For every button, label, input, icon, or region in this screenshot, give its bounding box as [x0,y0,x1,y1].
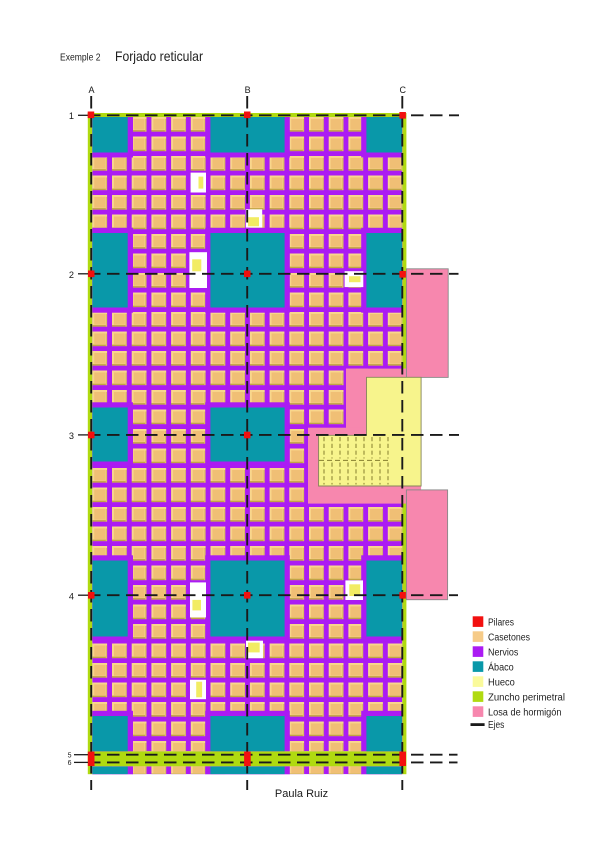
svg-text:Paula Ruiz: Paula Ruiz [275,788,328,800]
svg-text:5: 5 [68,752,72,759]
svg-text:4: 4 [69,591,74,601]
svg-text:Ábaco: Ábaco [488,662,514,673]
svg-text:B: B [245,85,251,95]
svg-text:1: 1 [69,111,74,121]
svg-text:3: 3 [69,431,74,441]
svg-text:Pilares: Pilares [488,617,514,628]
svg-text:Forjado reticular: Forjado reticular [115,48,203,64]
svg-text:Ejes: Ejes [488,720,504,731]
svg-text:A: A [88,85,94,95]
svg-text:C: C [399,85,406,95]
svg-text:Casetones: Casetones [488,632,530,643]
svg-text:Nervios: Nervios [488,647,518,658]
svg-text:2: 2 [69,270,74,280]
svg-text:Losa de hormigón: Losa de hormigón [488,707,562,718]
svg-text:Exemple 2: Exemple 2 [60,52,101,64]
svg-text:6: 6 [68,760,72,767]
svg-text:Hueco: Hueco [488,677,515,688]
svg-text:Zuncho perimetral: Zuncho perimetral [488,692,565,703]
